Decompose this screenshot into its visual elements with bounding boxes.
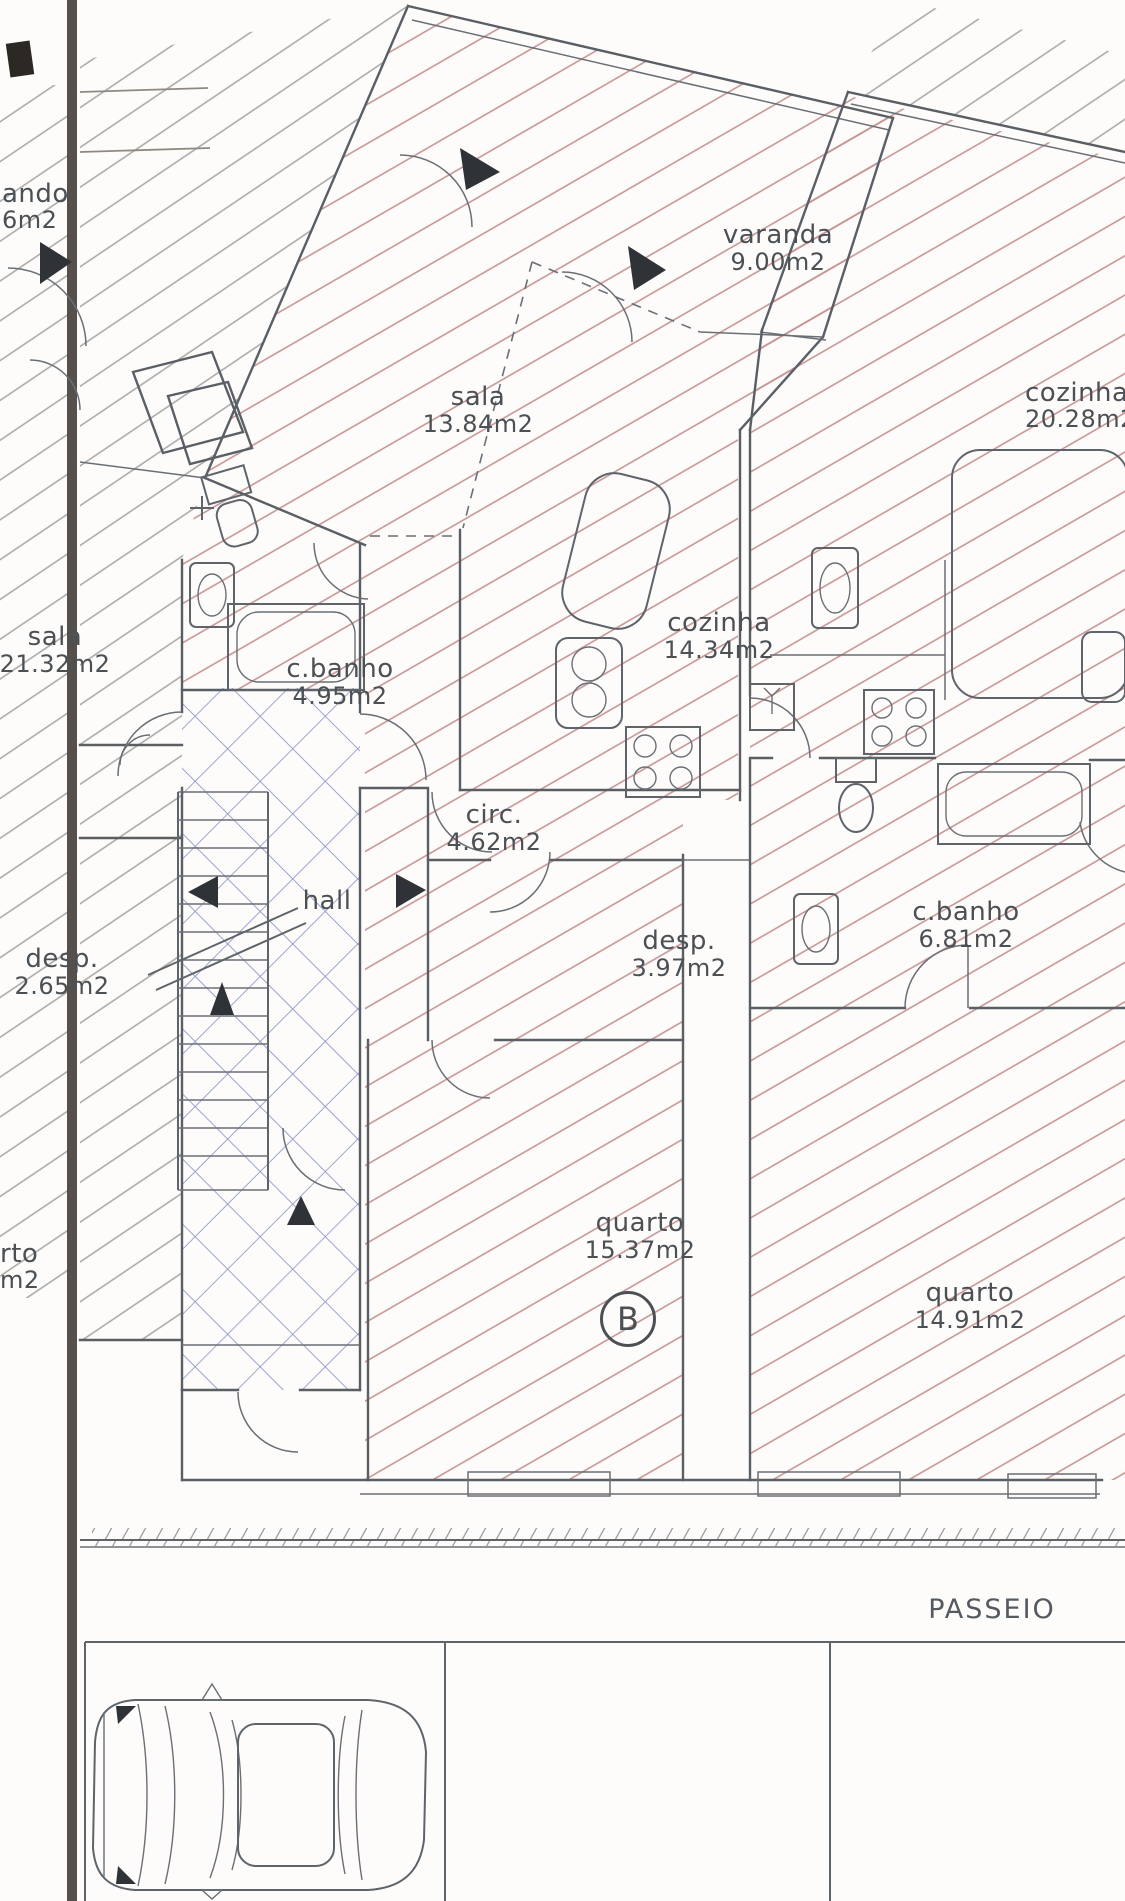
curb-hatching	[92, 1528, 1125, 1546]
room-label-hall: hall	[303, 888, 352, 915]
room-label-sala-b: sala 13.84m2	[423, 384, 534, 438]
floor-plan-page: varanda 9.00m2 sala 13.84m2 cozinha 20.2…	[0, 0, 1125, 1901]
room-label-circ-b: circ. 4.62m2	[446, 802, 541, 856]
room-label-varanda-left-partial: ando 6m2	[2, 181, 69, 233]
hatch-regions	[0, 0, 1125, 1480]
room-label-varanda-b: varanda 9.00m2	[723, 222, 833, 276]
room-label-quarto-right: quarto 14.91m2	[915, 1280, 1026, 1334]
room-label-desp-left: desp. 2.65m2	[14, 946, 109, 1000]
room-label-cozinha-b: cozinha 14.34m2	[664, 610, 775, 664]
room-label-sala-left: sala 21.32m2	[0, 624, 110, 678]
room-label-desp-b: desp. 3.97m2	[631, 928, 726, 982]
room-label-quarto-b: quarto 15.37m2	[585, 1210, 696, 1264]
room-label-cozinha-right: cozinha 20.28m2	[1025, 380, 1125, 432]
car-roof	[238, 1724, 334, 1866]
car-mirror	[202, 1890, 222, 1899]
car-mirror	[202, 1684, 222, 1700]
hall-stairwell-region	[182, 688, 360, 1390]
car-windshield	[210, 1712, 224, 1878]
scan-artifact	[6, 40, 34, 77]
room-label-cbanho-right: c.banho 6.81m2	[912, 899, 1019, 953]
room-label-quarto-left-partial: rto m2	[0, 1241, 40, 1293]
car	[93, 1684, 426, 1899]
unit-b-badge: B	[600, 1291, 656, 1347]
car-rear-window	[338, 1716, 345, 1874]
room-label-cbanho-b: c.banho 4.95m2	[286, 656, 393, 710]
sidewalk-label: PASSEIO	[928, 1594, 1056, 1625]
